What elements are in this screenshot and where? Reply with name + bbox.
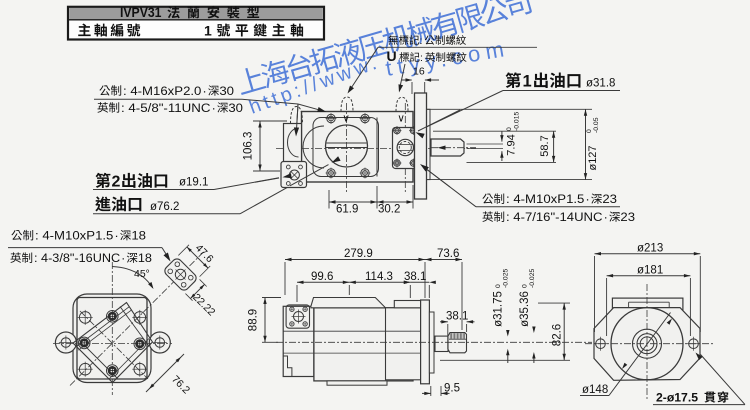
svg-text:ø76.2: ø76.2 (150, 201, 179, 213)
svg-text:·: · (114, 231, 118, 243)
svg-text:106.3: 106.3 (243, 132, 255, 161)
svg-text:ø35.36: ø35.36 (519, 291, 531, 327)
svg-text:ø19.1: ø19.1 (179, 177, 208, 189)
svg-text:: 4-M10xP1.5: : 4-M10xP1.5 (506, 194, 584, 206)
svg-text:1: 1 (523, 73, 532, 91)
svg-text:: 4-7/16"-14UNC: : 4-7/16"-14UNC (506, 212, 603, 224)
svg-text:: 4-3/8"-16UNC: : 4-3/8"-16UNC (34, 253, 120, 265)
svg-text:·: · (604, 212, 608, 224)
svg-text:-0.025: -0.025 (529, 269, 536, 288)
svg-text:0: 0 (495, 284, 502, 288)
svg-text:ø127: ø127 (587, 145, 599, 170)
svg-text:16: 16 (413, 66, 425, 78)
svg-text:ø31.75: ø31.75 (493, 291, 505, 327)
svg-text::: : (420, 35, 423, 47)
svg-text:1: 1 (204, 22, 212, 38)
svg-text:23: 23 (602, 194, 617, 206)
svg-text:30: 30 (219, 86, 234, 98)
svg-text:·: · (202, 86, 206, 98)
svg-text:-0.025: -0.025 (503, 269, 510, 288)
svg-text:73.6: 73.6 (437, 248, 459, 260)
svg-text:∨: ∨ (397, 113, 405, 125)
svg-text:114.3: 114.3 (365, 271, 393, 283)
svg-text:-0.015: -0.015 (514, 112, 521, 131)
svg-text:-0.05: -0.05 (593, 117, 600, 133)
svg-text:2: 2 (112, 174, 121, 191)
svg-text:18: 18 (131, 231, 146, 243)
svg-text:·: · (211, 103, 215, 115)
svg-text::: : (420, 52, 423, 64)
svg-text:82.6: 82.6 (552, 324, 564, 346)
svg-text:23: 23 (620, 212, 635, 224)
svg-text:0: 0 (522, 284, 529, 288)
svg-text:38.1: 38.1 (404, 271, 426, 283)
svg-text:2-ø17.5: 2-ø17.5 (656, 391, 698, 405)
svg-text:38.1: 38.1 (446, 311, 468, 323)
svg-text:88.9: 88.9 (248, 309, 260, 331)
svg-text:: 4-M16xP2.0: : 4-M16xP2.0 (123, 86, 201, 98)
svg-text:7.94: 7.94 (506, 134, 518, 155)
svg-text:·: · (585, 194, 589, 206)
svg-text:∨: ∨ (342, 113, 350, 125)
svg-text:IVPV31: IVPV31 (120, 4, 162, 20)
svg-text:°: ° (146, 268, 150, 280)
svg-text:58.7: 58.7 (539, 135, 551, 156)
svg-text:ø181: ø181 (637, 265, 663, 277)
svg-text:ø148: ø148 (582, 384, 608, 396)
svg-text:0: 0 (586, 129, 593, 133)
svg-text:61.9: 61.9 (336, 204, 358, 216)
svg-text:·: · (121, 253, 125, 265)
svg-text:ø31.8: ø31.8 (586, 78, 615, 90)
svg-text:99.6: 99.6 (311, 271, 333, 283)
svg-text:9.5: 9.5 (444, 383, 460, 395)
svg-text:45: 45 (134, 268, 146, 280)
svg-text:30: 30 (228, 103, 243, 115)
svg-text:30.2: 30.2 (378, 204, 400, 216)
svg-text:: 4-M10xP1.5: : 4-M10xP1.5 (35, 231, 113, 243)
svg-text:: 4-5/8"-11UNC: : 4-5/8"-11UNC (121, 103, 211, 115)
svg-text:279.9: 279.9 (344, 248, 373, 260)
svg-text:18: 18 (138, 253, 152, 265)
svg-text:ø213: ø213 (637, 243, 663, 255)
svg-text:U: U (387, 48, 397, 64)
svg-text:0: 0 (506, 127, 513, 131)
